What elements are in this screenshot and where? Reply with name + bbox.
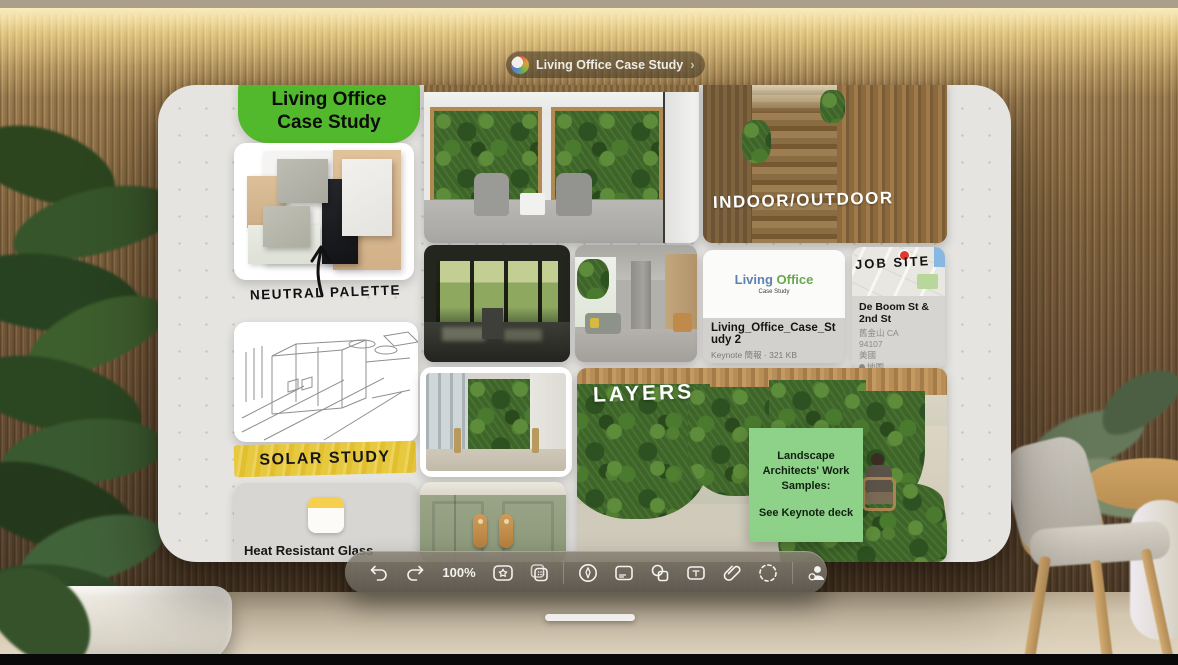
notes-file-app: 備忘錄 — [244, 560, 273, 562]
insert-favorites-button[interactable] — [485, 551, 521, 594]
sticky-note-button[interactable] — [606, 551, 642, 594]
green-sticky-note[interactable]: Landscape Architects' Work Samples: See … — [749, 428, 863, 542]
keynote-brand-sub: Case Study — [758, 289, 789, 295]
map-country: 美國 — [859, 349, 938, 361]
visionos-scene: { "window_pill": { "title": "Living Offi… — [0, 0, 1178, 665]
freeform-app-icon — [511, 56, 529, 74]
shapes-button[interactable] — [642, 551, 678, 594]
undo-button[interactable] — [361, 551, 397, 594]
notes-app-icon — [308, 497, 344, 533]
keynote-brand-office: Office — [777, 272, 814, 287]
redo-button[interactable] — [397, 551, 433, 594]
sticky-text-1: Landscape Architects' Work Samples: — [757, 449, 855, 494]
draw-button[interactable] — [570, 551, 606, 594]
attachment-button[interactable] — [714, 551, 750, 594]
map-title: De Boom St & 2nd St — [859, 301, 938, 325]
window-title-pill[interactable]: Living Office Case Study › — [506, 51, 705, 78]
insert-favorites-icon — [492, 562, 514, 584]
solar-study-highlight[interactable]: SOLAR STUDY — [234, 441, 417, 478]
draw-icon — [577, 562, 599, 584]
layers-label[interactable]: LAYERS — [593, 380, 695, 408]
armchair — [474, 173, 510, 216]
collaborate-icon — [806, 562, 828, 584]
duplicate-board-icon — [528, 562, 550, 584]
keynote-filename: Living_Office_Case_Study 2 — [711, 322, 837, 347]
shapes-icon — [649, 562, 671, 584]
map-preview: JOB SITE — [852, 247, 945, 296]
freeform-board-window[interactable]: Living Office Case Study NEUTRAL PALETTE — [158, 85, 1011, 562]
undo-icon — [368, 562, 390, 584]
map-city: 舊金山 CA — [859, 327, 938, 339]
keynote-file-card[interactable]: Living Office Case Study Living_Office_C… — [703, 250, 845, 363]
redo-icon — [404, 562, 426, 584]
bottom-black-strip — [0, 654, 1178, 665]
keynote-meta: Keynote 簡報 · 321 KB — [711, 349, 837, 361]
window-grab-bar[interactable] — [545, 614, 635, 621]
render-living-wall-card[interactable] — [420, 367, 572, 477]
selection-icon — [757, 562, 779, 584]
chevron-right-icon: › — [690, 57, 694, 72]
text-box-button[interactable] — [678, 551, 714, 594]
title-shape-line2: Case Study — [277, 112, 380, 135]
selection-button[interactable] — [750, 551, 786, 594]
map-zip: 94107 — [859, 339, 938, 349]
solar-study-label: SOLAR STUDY — [259, 448, 391, 469]
sticky-text-2: See Keynote deck — [759, 506, 853, 521]
text-box-icon — [685, 562, 707, 584]
side-table — [520, 193, 545, 215]
photo-indoor-outdoor[interactable]: INDOOR/OUTDOOR — [703, 85, 947, 243]
neutral-palette-label[interactable]: NEUTRAL PALETTE — [228, 282, 423, 304]
photo-concrete-lounge[interactable] — [575, 245, 697, 362]
freeform-toolbar[interactable]: 100% — [345, 551, 827, 594]
photo-layers-atrium[interactable]: LAYERS Landscape Architects' Work Sample… — [577, 368, 947, 562]
board-title-shape[interactable]: Living Office Case Study — [238, 85, 420, 143]
photo-glass-pavilion[interactable] — [424, 245, 570, 362]
window-title: Living Office Case Study — [536, 58, 683, 72]
zoom-level-button[interactable]: 100% — [433, 565, 485, 580]
toolbar-divider — [563, 562, 564, 584]
keynote-brand-living: Living — [735, 272, 773, 287]
sticky-note-icon — [613, 562, 635, 584]
collaborate-button[interactable] — [799, 551, 835, 594]
map-location-card[interactable]: JOB SITE De Boom St & 2nd St 舊金山 CA 9410… — [852, 247, 945, 370]
attachment-icon — [721, 562, 743, 584]
photo-green-cabinet[interactable] — [420, 482, 566, 562]
armchair — [556, 173, 592, 216]
sketch-card[interactable] — [234, 322, 418, 442]
photo-green-wall-lounge[interactable] — [424, 85, 699, 243]
duplicate-board-button[interactable] — [521, 551, 557, 594]
title-shape-line1: Living Office — [271, 89, 386, 112]
toolbar-divider — [792, 562, 793, 584]
